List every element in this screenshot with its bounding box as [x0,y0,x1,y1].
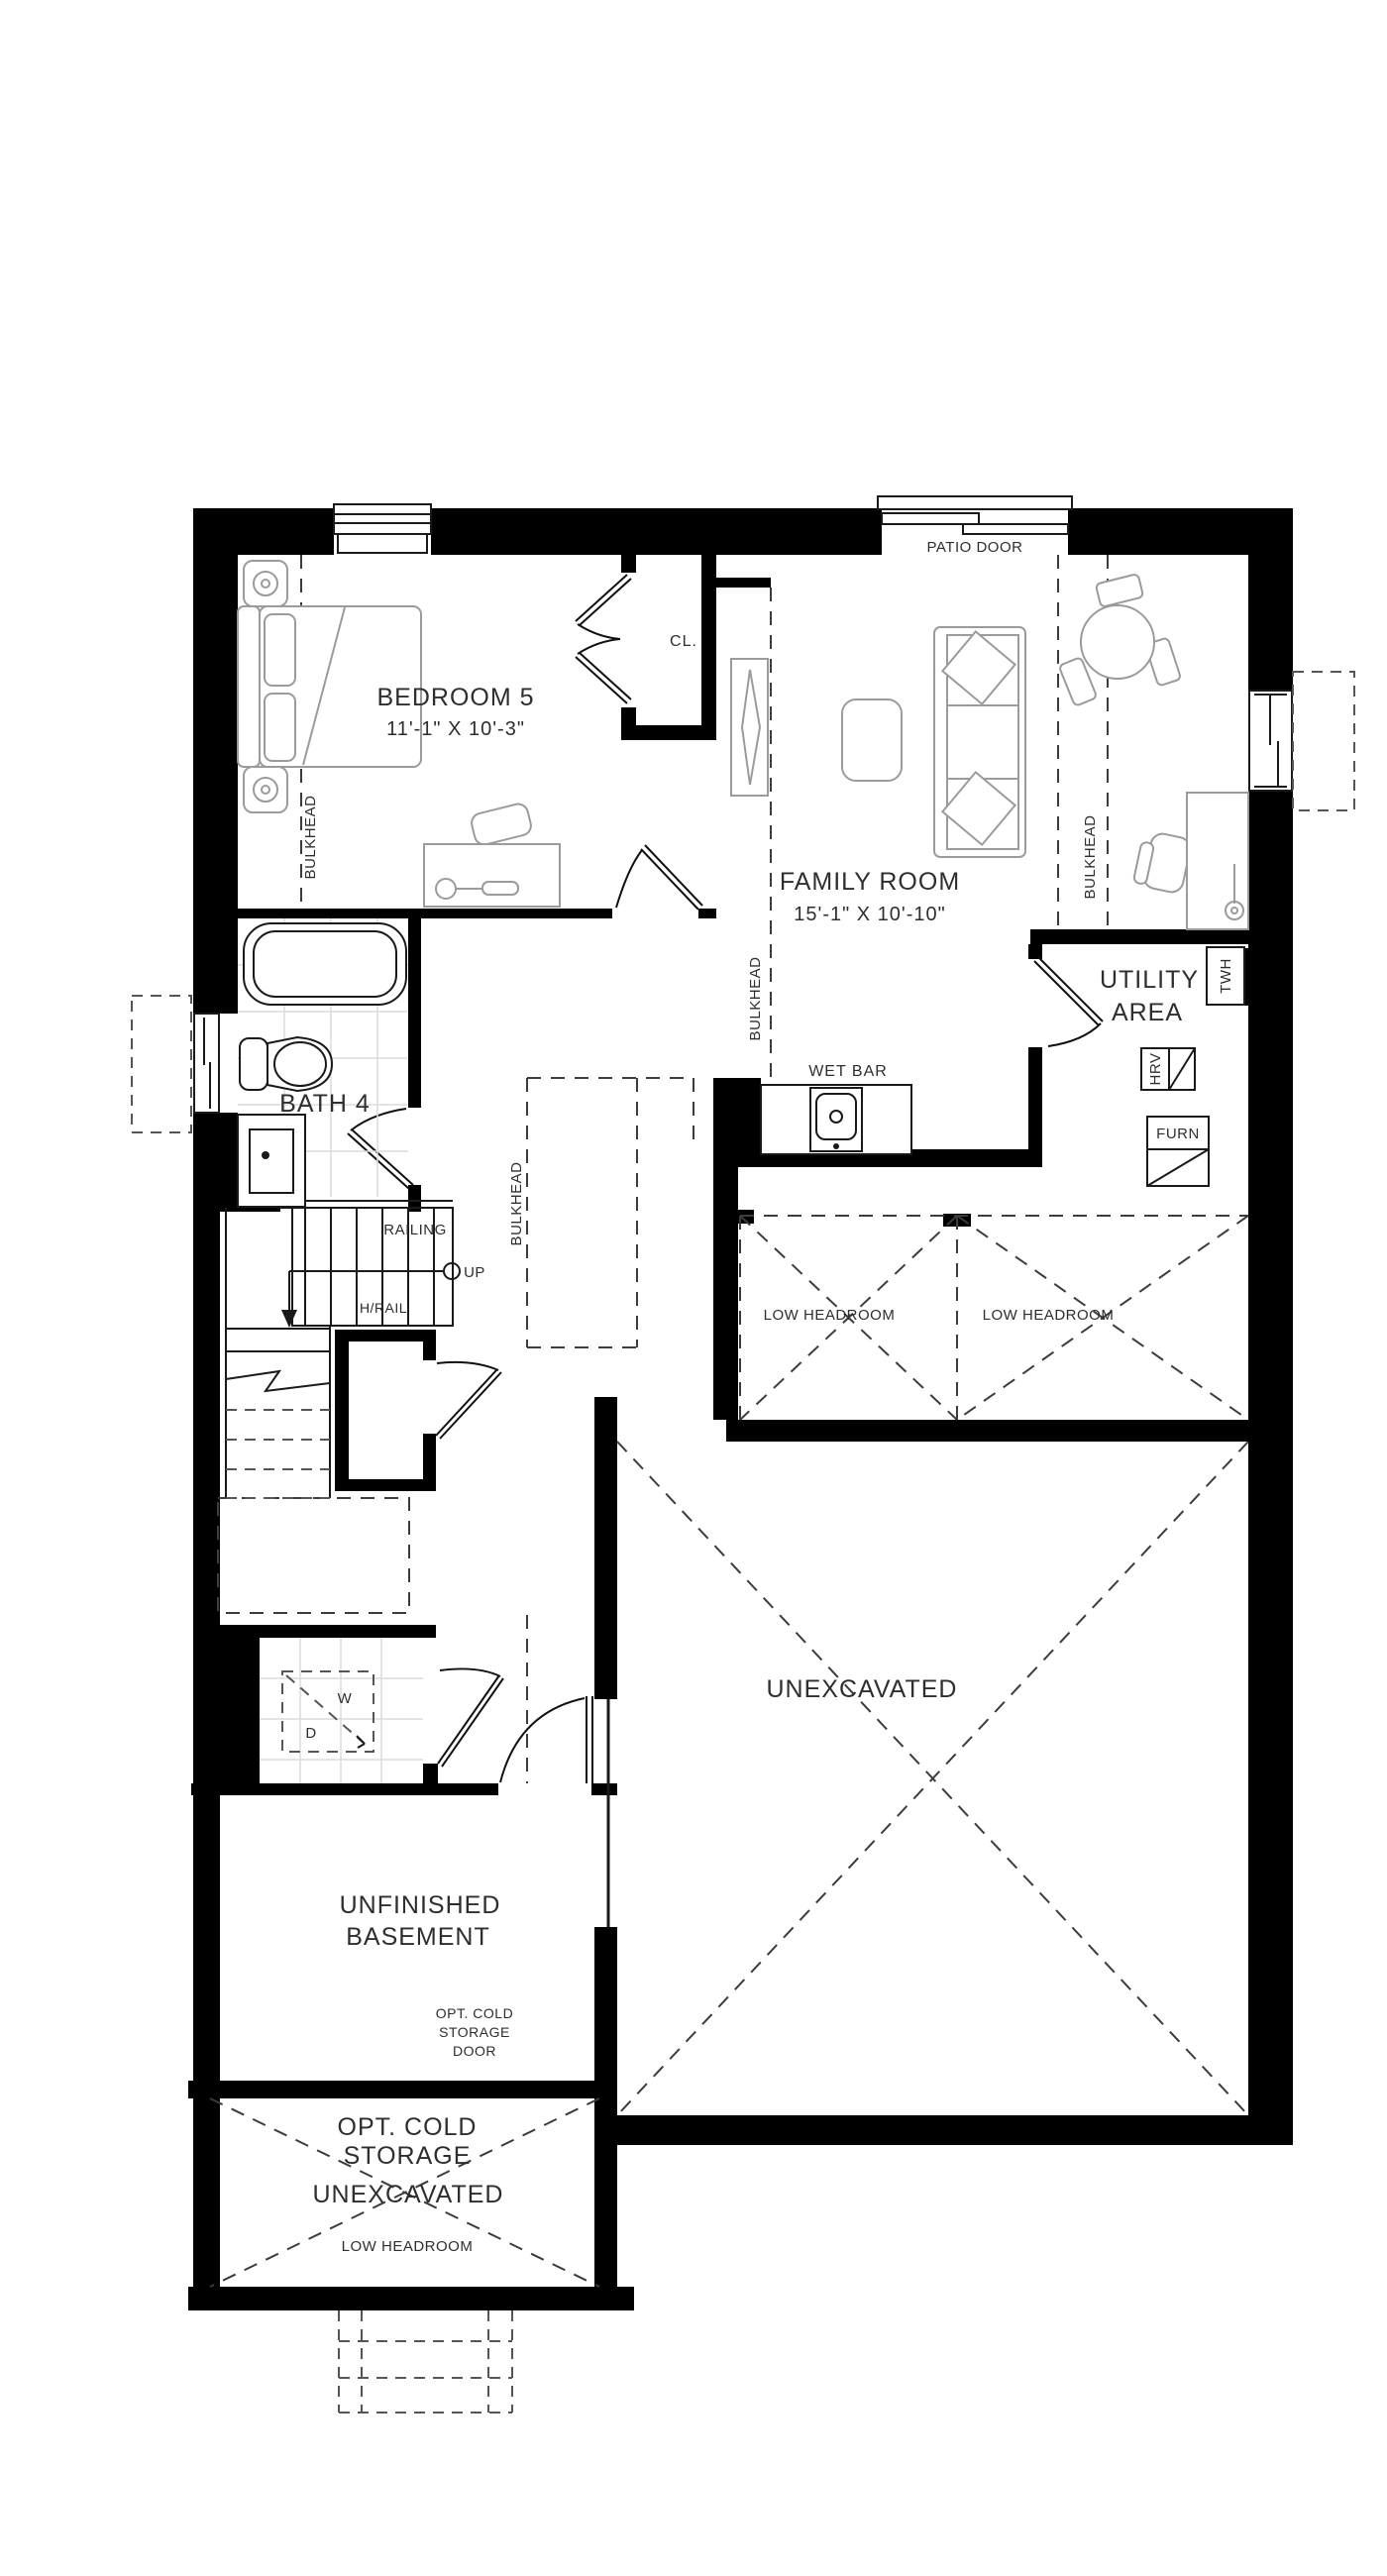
bedroom5-label: BEDROOM 5 [376,684,534,711]
handrail-label: H/RAIL [360,1300,407,1316]
up-label: UP [464,1264,485,1281]
bedroom-door [616,845,702,910]
wet-bar-label: WET BAR [808,1063,888,1080]
console-icon [731,659,768,796]
window-well-right [1293,672,1354,810]
bulkhead-label-stairs: BULKHEAD [508,1162,525,1246]
cold-storage-door-label2: STORAGE [439,2024,510,2040]
bedroom-window [334,504,431,553]
patio-door [878,496,1072,534]
cold-storage-unexcavated-label: UNEXCAVATED [313,2181,504,2208]
low-headroom-right-label: LOW HEADROOM [983,1307,1115,1324]
toilet-icon [240,1037,332,1091]
bulkhead-label-bedroom: BULKHEAD [302,796,319,880]
washer-dryer-icon [282,1671,373,1752]
closet-label: CL. [670,633,697,650]
cold-storage-label2: STORAGE [344,2142,472,2170]
wet-bar-counter [761,1085,911,1154]
window-well-left [132,996,191,1132]
furnace-label: FURN [1156,1126,1200,1142]
dining-table-icon [1059,574,1182,706]
nightstand-icon [244,767,287,812]
twh-label: TWH [1218,958,1234,994]
low-headroom-left-label: LOW HEADROOM [764,1307,896,1324]
dryer-label: D [305,1725,316,1742]
bulkhead-label-family-left: BULKHEAD [747,957,764,1041]
family-room-window [1249,691,1292,791]
cold-storage-door-label: OPT. COLD [436,2005,513,2021]
bath-door [348,1109,413,1189]
unfinished-basement-label: UNFINISHED [340,1891,501,1919]
bath-window [194,1014,219,1113]
hrv-label: HRV [1147,1053,1164,1086]
cold-storage-low-headroom-label: LOW HEADROOM [342,2238,474,2255]
cold-storage-label: OPT. COLD [338,2113,478,2141]
cold-storage-door-swing [500,1696,592,1783]
tub-icon [244,923,406,1005]
exterior-steps [339,2310,512,2413]
family-room-dims: 15'-1" X 10'-10" [794,904,945,925]
unfinished-basement-label2: BASEMENT [346,1923,490,1951]
bulkhead-label-family-right: BULKHEAD [1082,815,1099,900]
utility-area-label: UTILITY [1100,966,1199,994]
utility-door [1034,957,1103,1046]
patio-door-label: PATIO DOOR [927,539,1023,556]
family-room-label: FAMILY ROOM [780,868,960,896]
vanity-icon [238,1115,305,1207]
laundry-door [438,1668,503,1767]
unexcavated-label: UNEXCAVATED [767,1675,958,1703]
nightstand-icon [244,561,287,606]
bath4-label: BATH 4 [279,1090,371,1118]
bedroom-desk-icon [424,802,560,907]
cold-storage-door-label3: DOOR [453,2043,496,2059]
bedroom5-dims: 11'-1" X 10'-3" [386,718,525,740]
sofa-icon [934,627,1025,857]
family-desk-icon [1133,793,1248,929]
floor-plan-page: { "title": "Basement Floor Plan", "color… [0,0,1387,2576]
coffee-table-icon [842,699,902,781]
unexcavated-cross [617,1442,1248,2115]
railing-label: RAILING [383,1222,447,1238]
utility-area-label2: AREA [1112,999,1183,1026]
closet-bifold-doors [576,575,631,703]
laundry-tile [260,1638,423,1783]
understair-closet-door [436,1362,501,1439]
washer-label: W [338,1690,353,1707]
floor-plan: BEDROOM 5 11'-1" X 10'-3" FAMILY ROOM 15… [0,0,1387,2576]
